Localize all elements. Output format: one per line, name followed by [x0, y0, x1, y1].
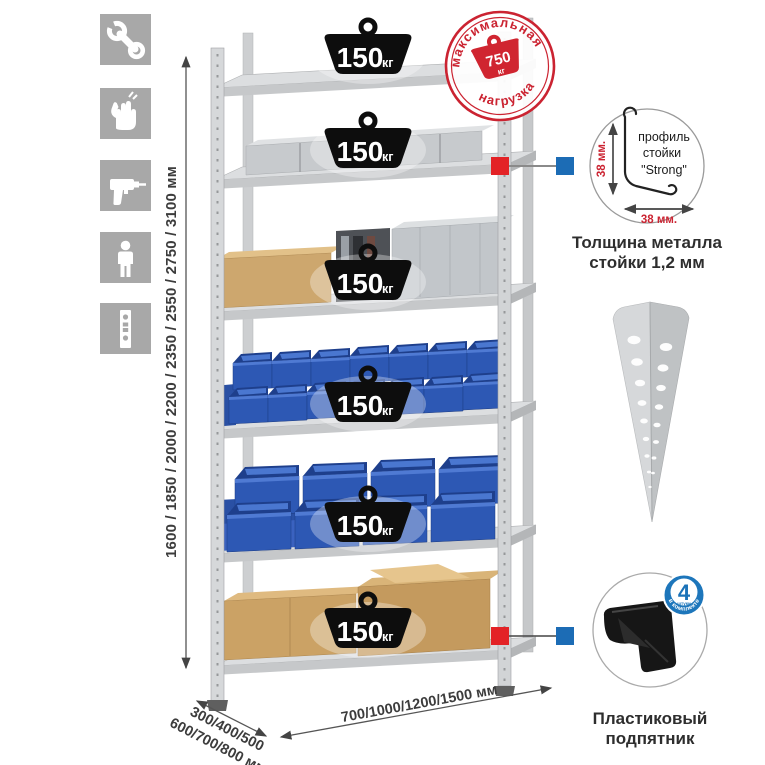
weight-unit: кг	[382, 524, 393, 538]
gloves-icon	[100, 88, 151, 139]
foot-detail: 4 штуки в комплекте Пластиковый подпятни…	[593, 573, 708, 748]
max-load-stamp: максимальная нагрузка 750 кг	[435, 1, 566, 132]
profile-dim-horizontal: 38 мм.	[641, 214, 677, 226]
foot-caption-2: подпятник	[606, 729, 695, 748]
profile-label-2: стойки	[643, 146, 681, 160]
red-marker	[491, 157, 509, 175]
shelving-rack: 150 кг 150 кг 150 кг 150 кг 150 кг	[207, 18, 536, 711]
weight-150kg: 150 кг	[310, 20, 426, 84]
width-dimension-label: 700/1000/1200/1500 мм	[340, 682, 499, 726]
blue-marker	[556, 157, 574, 175]
profile-dim-vertical: 38 мм.	[596, 141, 608, 177]
wrench-icon	[100, 14, 151, 65]
feature-icons-column	[100, 14, 151, 354]
included-badge: 4 штуки в комплекте	[664, 575, 705, 616]
weight-value: 150	[337, 616, 384, 647]
rack-post-icon	[100, 303, 151, 354]
shelving-infographic: 1600 / 1850 / 2000 / 2200 / 2350 / 2550 …	[0, 0, 765, 765]
weight-unit: кг	[382, 56, 393, 70]
weight-value: 150	[337, 136, 384, 167]
profile-caption-2: стойки 1,2 мм	[589, 253, 705, 272]
blue-marker	[556, 627, 574, 645]
shelf-weights: 150 кг 150 кг 150 кг 150 кг 150 кг	[310, 20, 426, 658]
weight-150kg: 150 кг	[310, 114, 426, 178]
weight-value: 150	[337, 42, 384, 73]
height-dimension-label: 1600 / 1850 / 2000 / 2200 / 2350 / 2550 …	[163, 166, 180, 558]
weight-unit: кг	[382, 150, 393, 164]
profile-label-3: "Strong"	[641, 163, 687, 177]
weight-unit: кг	[382, 404, 393, 418]
height-dimension: 1600 / 1850 / 2000 / 2200 / 2350 / 2550 …	[163, 57, 186, 668]
weight-unit: кг	[382, 282, 393, 296]
badge-unit: штуки	[677, 601, 691, 606]
weight-value: 150	[337, 390, 384, 421]
red-marker	[491, 627, 509, 645]
drill-icon	[100, 160, 151, 211]
profile-caption-1: Толщина металла	[572, 233, 722, 252]
weight-value: 150	[337, 268, 384, 299]
back-left-post	[243, 33, 253, 666]
person-icon	[100, 232, 151, 283]
foot-caption-1: Пластиковый	[593, 709, 708, 728]
profile-label-1: профиль	[638, 130, 690, 144]
weight-value: 150	[337, 510, 384, 541]
angle-post-image	[613, 302, 689, 522]
profile-detail: 38 мм. 38 мм. профиль стойки "Strong" То…	[572, 108, 722, 272]
weight-unit: кг	[382, 630, 393, 644]
